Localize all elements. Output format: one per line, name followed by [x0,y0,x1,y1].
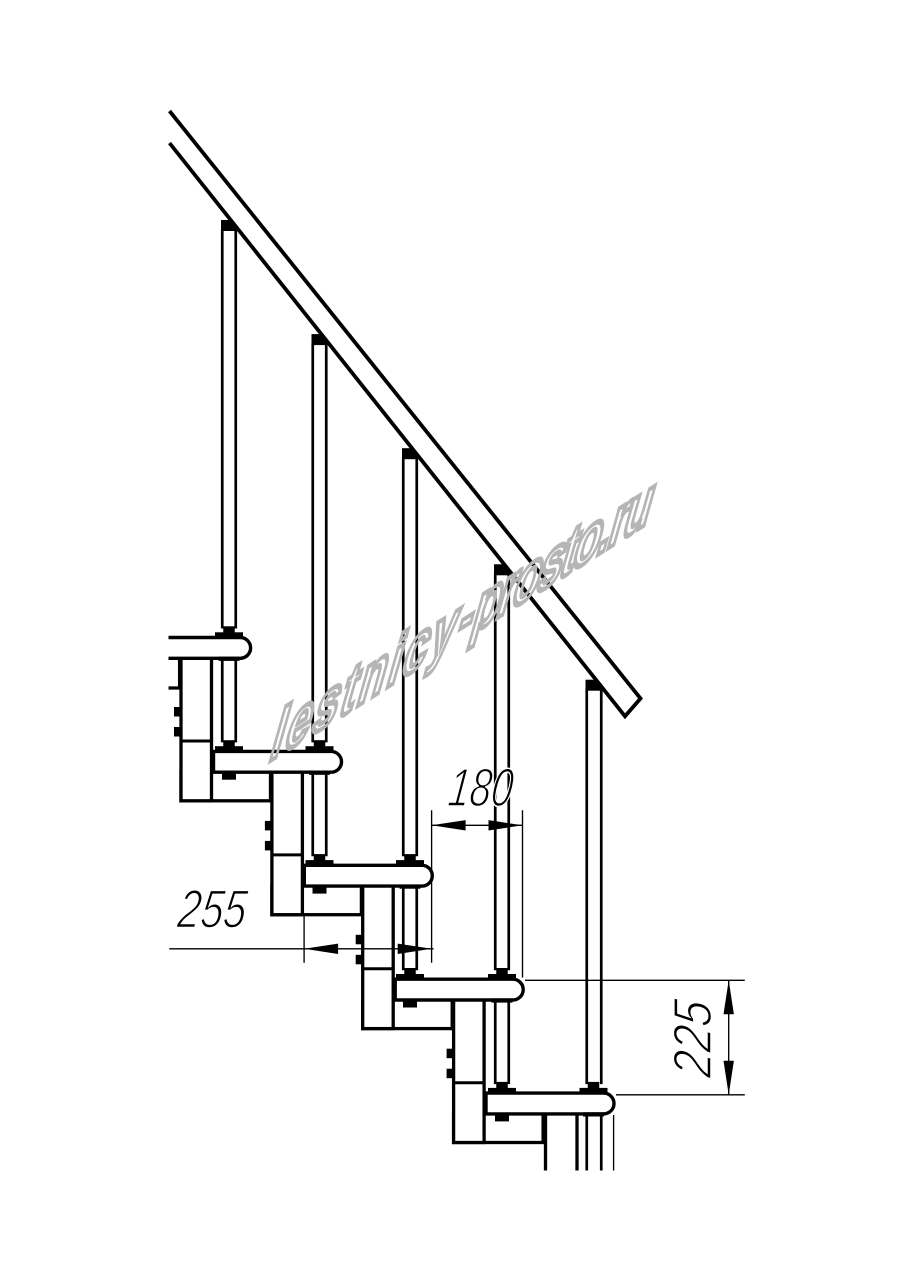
svg-text:225: 225 [663,996,723,1081]
svg-text:180: 180 [445,758,516,818]
svg-text:255: 255 [174,880,251,940]
